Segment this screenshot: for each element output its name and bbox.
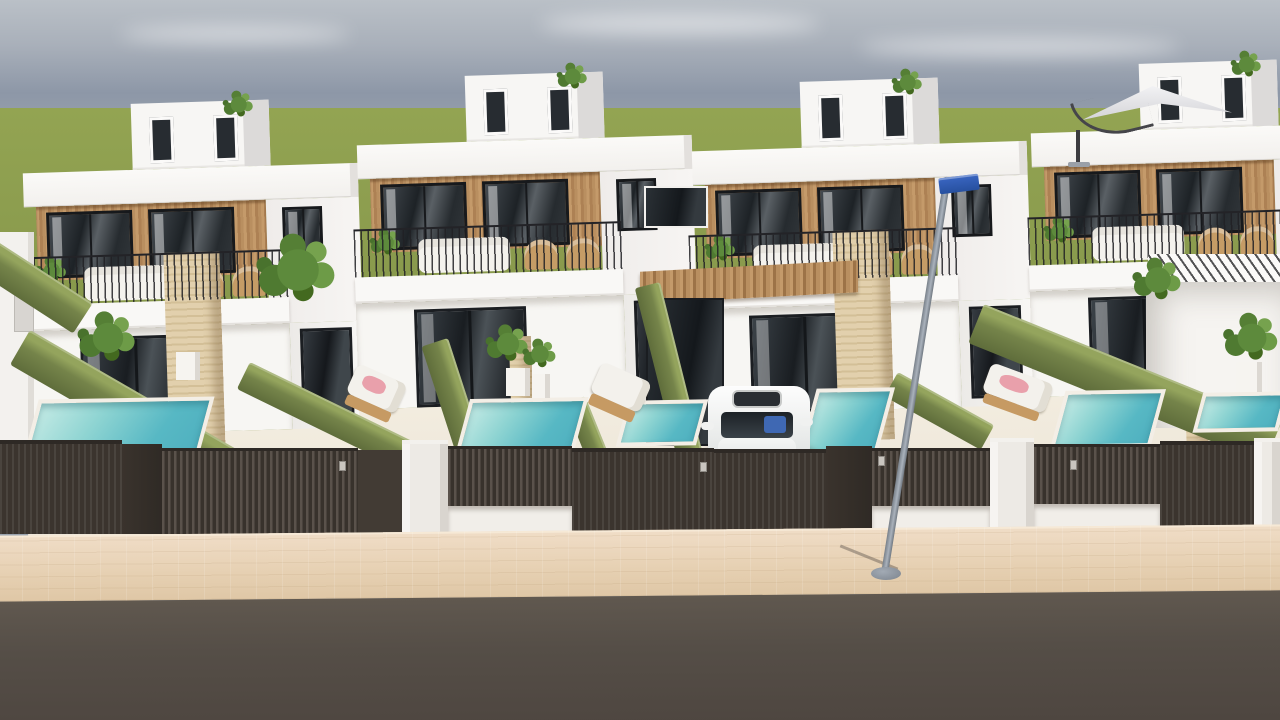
low-slats-3 [1034,444,1160,506]
gate-tall-3 [714,449,826,534]
rooftop-plant [564,68,580,84]
gate-tall-2 [572,448,714,534]
white-pillar-3 [1254,438,1280,534]
terrace-railing [353,221,622,277]
gate-keypad [339,461,346,471]
pole-base [871,567,901,580]
umbrella-mast [1076,130,1080,164]
plant-pot-2b [531,345,549,363]
car-mirror-left [701,422,714,430]
low-slats-2 [872,448,990,508]
architectural-render [0,0,1280,720]
asphalt-road [0,590,1280,720]
rooftop-door-opening [213,115,238,162]
pool-6 [1192,391,1280,432]
pool-5 [1050,389,1166,449]
rooftop-plant [230,96,246,112]
rooftop-stair-box [465,72,605,142]
gate-keypad [700,462,707,472]
white-pillar-2 [990,438,1034,534]
rooftop-door-opening [1221,75,1246,122]
pillar-2 [826,446,872,534]
gate-tall-1 [0,440,122,534]
planter-2a [506,368,530,396]
gate-keypad [878,456,885,466]
white-pillar-1 [402,440,448,534]
planter-1 [176,352,200,380]
slat-fence-1 [162,448,358,534]
palm-balcony-right [1145,267,1171,293]
rooftop-stair-box [131,100,271,170]
wall-1 [358,450,402,534]
umbrella-base [1068,162,1090,167]
car-blue-bag [764,416,786,433]
rooftop-door-opening [149,117,174,164]
planter-2b [532,374,550,398]
palm-wall-right [1238,324,1267,353]
car-sunroof [732,390,782,408]
low-slats-1 [448,446,572,508]
passage-upper-window [644,186,708,228]
planter-right [1236,362,1262,392]
gate-keypad [1070,460,1077,470]
gate-tall-4 [1160,441,1254,534]
street [0,524,1280,720]
car-mirror-right [800,418,813,426]
rooftop-door-opening [483,89,508,136]
plant-pot-2a [497,333,519,355]
rooftop-plant [899,74,915,90]
rooftop-stair-box [800,78,940,148]
rooftop-door-opening [547,87,572,134]
palm-patio-1b [277,249,319,291]
pillar-1 [122,444,162,534]
rooftop-plant [1238,56,1254,72]
rooftop-door-opening [882,93,907,140]
sidewalk-pavers [0,524,1280,601]
palm-patio-1 [93,323,123,353]
rooftop-door-opening [818,95,843,142]
